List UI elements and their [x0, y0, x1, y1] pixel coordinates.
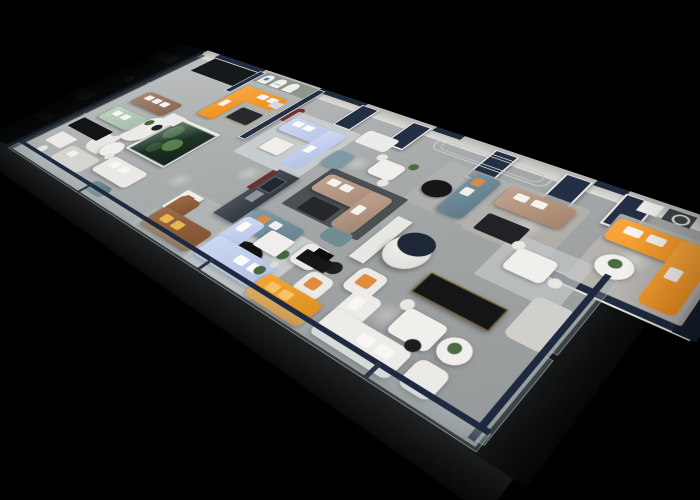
floor-plan: [12, 55, 665, 445]
showroom-floorplan-render: [0, 0, 700, 500]
